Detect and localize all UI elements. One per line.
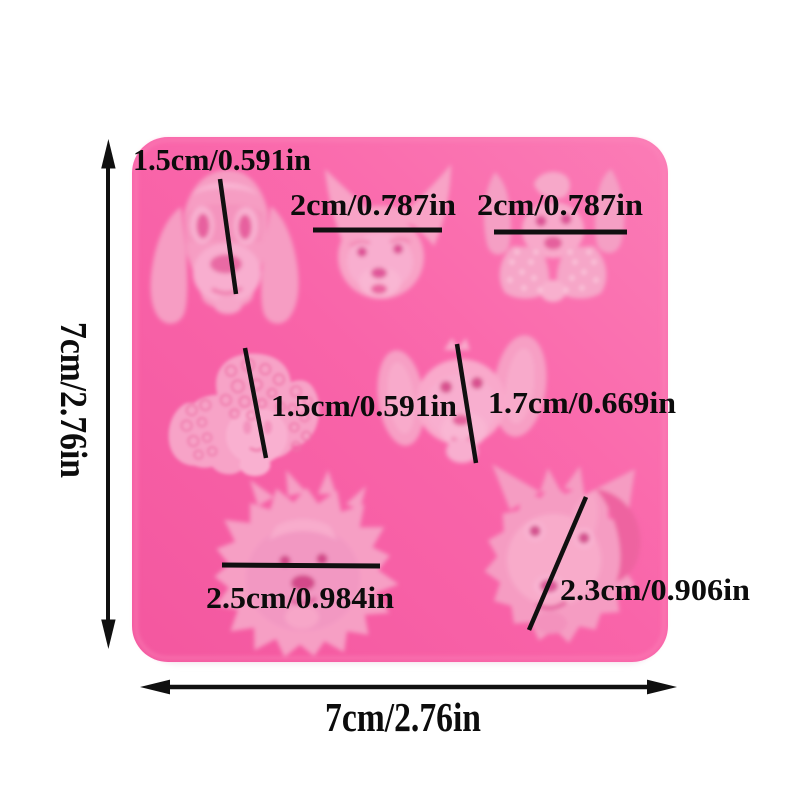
svg-text:7cm/2.76in: 7cm/2.76in	[52, 322, 94, 478]
svg-text:1.5cm/0.591in: 1.5cm/0.591in	[133, 142, 311, 177]
svg-text:7cm/2.76in: 7cm/2.76in	[325, 694, 481, 740]
svg-text:2.5cm/0.984in: 2.5cm/0.984in	[206, 580, 394, 615]
svg-text:1.5cm/0.591in: 1.5cm/0.591in	[271, 388, 457, 423]
svg-text:1.7cm/0.669in: 1.7cm/0.669in	[488, 385, 676, 420]
svg-text:2cm/0.787in: 2cm/0.787in	[290, 187, 456, 222]
svg-text:2cm/0.787in: 2cm/0.787in	[477, 187, 643, 222]
svg-text:2.3cm/0.906in: 2.3cm/0.906in	[560, 572, 750, 607]
